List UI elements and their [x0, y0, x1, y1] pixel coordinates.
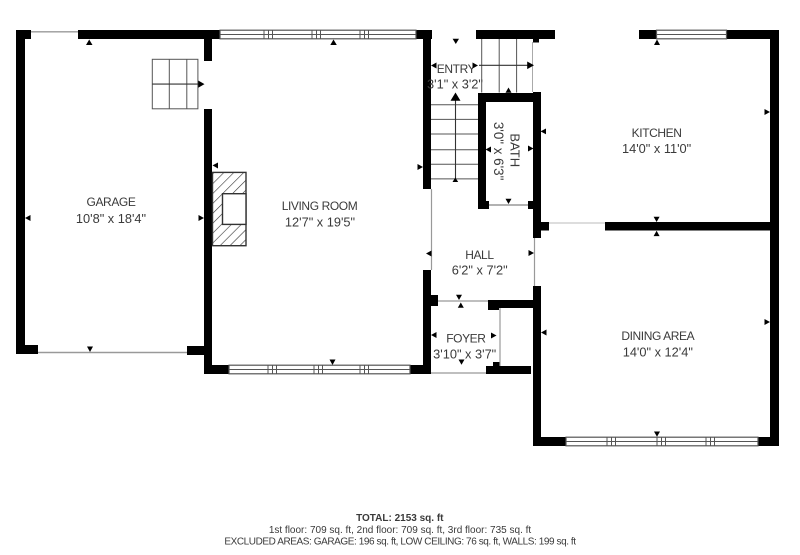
svg-text:EXCLUDED AREAS: GARAGE: 196 sq: EXCLUDED AREAS: GARAGE: 196 sq. ft, LOW … — [224, 537, 576, 548]
svg-text:6'2" x 7'2": 6'2" x 7'2" — [452, 263, 508, 278]
svg-text:14'0" x 12'4": 14'0" x 12'4" — [623, 344, 693, 359]
svg-text:FOYER: FOYER — [446, 332, 486, 346]
svg-text:DINING AREA: DINING AREA — [621, 329, 694, 343]
svg-text:3'1" x 3'2": 3'1" x 3'2" — [427, 77, 483, 92]
svg-text:BATH: BATH — [507, 133, 522, 167]
svg-text:ENTRY: ENTRY — [437, 62, 476, 76]
svg-text:GARAGE: GARAGE — [87, 195, 136, 209]
svg-text:1st floor: 709 sq. ft, 2nd flo: 1st floor: 709 sq. ft, 2nd floor: 709 sq… — [269, 525, 532, 536]
svg-text:14'0" x 11'0": 14'0" x 11'0" — [622, 141, 691, 156]
svg-text:3'0" x 6'3": 3'0" x 6'3" — [491, 122, 506, 181]
svg-text:LIVING ROOM: LIVING ROOM — [282, 199, 358, 213]
svg-text:KITCHEN: KITCHEN — [632, 126, 682, 140]
svg-text:12'7" x 19'5": 12'7" x 19'5" — [285, 215, 355, 230]
svg-text:TOTAL: 2153 sq. ft: TOTAL: 2153 sq. ft — [356, 513, 444, 524]
svg-text:3'10" x 3'7": 3'10" x 3'7" — [433, 347, 496, 362]
svg-text:10'8" x 18'4": 10'8" x 18'4" — [76, 211, 146, 226]
svg-text:HALL: HALL — [465, 248, 494, 262]
